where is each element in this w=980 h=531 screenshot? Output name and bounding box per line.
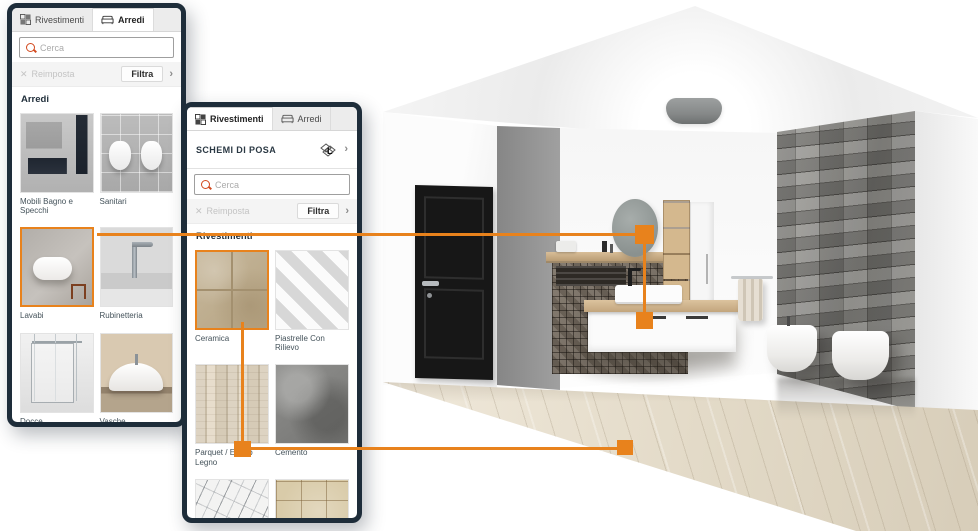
lavabi-thumbnail [20, 227, 94, 307]
tab-arredi[interactable]: Arredi [273, 107, 331, 130]
catalog-grid: Mobili Bagno e Specchi Sanitari Lavabi R… [12, 109, 181, 422]
catalog-item-piastrelle-rilievo[interactable]: Piastrelle Con Rilievo [275, 250, 349, 352]
reset-label: Reimposta [207, 206, 250, 216]
tab-label: Arredi [118, 15, 145, 25]
tile-layout-icon: L [318, 140, 338, 160]
shelf-towels [556, 241, 576, 252]
catalog-item-lavabi[interactable]: Lavabi [20, 227, 94, 320]
catalog-item-vasche[interactable]: Vasche [100, 333, 174, 422]
item-label: Piastrelle Con Rilievo [275, 334, 349, 352]
sofa-icon [101, 15, 114, 25]
clear-icon: ✕ [20, 69, 28, 80]
filter-row: ✕ Reimposta Filtra › [12, 62, 181, 86]
round-mirror[interactable] [612, 199, 658, 257]
door-handle-icon [422, 281, 439, 286]
section-label: Arredi [12, 86, 181, 109]
filter-button[interactable]: Filtra › [297, 203, 349, 219]
parquet-thumbnail [195, 364, 269, 444]
door-keyhole-icon [427, 293, 432, 298]
tab-bar: Rivestimenti Arredi [187, 107, 357, 131]
item-label: Mobili Bagno e Specchi [20, 197, 94, 215]
catalog-item-docce[interactable]: Docce [20, 333, 94, 422]
stone-base-shadow [777, 378, 915, 418]
docce-thumbnail [20, 333, 94, 413]
arredi-panel: Rivestimenti Arredi ✕ Reimposta Filtra › [7, 3, 186, 427]
reset-button[interactable]: ✕ Reimposta [195, 206, 250, 217]
sanitari-thumbnail [100, 113, 174, 193]
search-icon [201, 180, 210, 189]
chevron-right-icon: › [344, 144, 348, 155]
app-stage: Rivestimenti Arredi ✕ Reimposta Filtra › [0, 0, 980, 531]
marmo-thumbnail [195, 479, 269, 518]
tiles-icon [195, 114, 206, 125]
catalog-item-mobili-bagno[interactable]: Mobili Bagno e Specchi [20, 113, 94, 215]
ceramica-thumbnail [195, 250, 269, 330]
tall-cabinet-white[interactable] [690, 202, 714, 306]
item-label: Docce [20, 417, 94, 422]
shelf-bottles [602, 241, 607, 252]
reset-label: Reimposta [32, 69, 75, 79]
search-input[interactable] [40, 43, 167, 53]
sofa-icon [281, 114, 294, 124]
tab-arredi[interactable]: Arredi [93, 8, 154, 31]
catalog-item-pietra[interactable] [275, 479, 349, 518]
item-label: Sanitari [100, 197, 174, 206]
vasche-thumbnail [100, 333, 174, 413]
item-label: Parquet / Effetto Legno [195, 448, 269, 466]
filter-label: Filtra [121, 66, 163, 82]
filter-label: Filtra [297, 203, 339, 219]
catalog-grid: Ceramica Piastrelle Con Rilievo Parquet … [187, 246, 357, 518]
tab-label: Rivestimenti [35, 15, 84, 25]
schemi-di-posa-button[interactable]: SCHEMI DI POSA L › [187, 131, 357, 169]
filter-row: ✕ Reimposta Filtra › [187, 199, 357, 223]
item-label: Vasche [100, 417, 174, 422]
vanity-cabinet[interactable] [588, 312, 736, 352]
item-label: Rubinetteria [100, 311, 174, 320]
chevron-right-icon: › [345, 206, 349, 217]
wall-hung-toilet[interactable] [832, 331, 889, 380]
tab-bar: Rivestimenti Arredi [12, 8, 181, 32]
search-icon [26, 43, 35, 52]
mobili-bagno-thumbnail [20, 113, 94, 193]
shelf-niche [556, 266, 626, 286]
catalog-item-cemento[interactable]: Cemento [275, 364, 349, 466]
pietra-thumbnail [275, 479, 349, 518]
svg-text:L: L [327, 146, 333, 156]
search-box[interactable] [194, 174, 350, 195]
search-row [187, 169, 357, 199]
reset-button[interactable]: ✕ Reimposta [20, 69, 75, 80]
item-label: Ceramica [195, 334, 269, 343]
filter-button[interactable]: Filtra › [121, 66, 173, 82]
item-label: Lavabi [20, 311, 94, 320]
tab-rivestimenti[interactable]: Rivestimenti [12, 8, 93, 31]
search-input[interactable] [215, 180, 343, 190]
tab-rivestimenti[interactable]: Rivestimenti [187, 107, 273, 130]
tab-label: Arredi [298, 114, 322, 124]
washbasin[interactable] [615, 285, 682, 304]
chevron-right-icon: › [169, 69, 173, 80]
catalog-item-ceramica[interactable]: Ceramica [195, 250, 269, 352]
catalog-item-rubinetteria[interactable]: Rubinetteria [100, 227, 174, 320]
search-row [12, 32, 181, 62]
tiles-icon [20, 14, 31, 25]
schemi-di-posa-label: SCHEMI DI POSA [196, 145, 312, 155]
cemento-thumbnail [275, 364, 349, 444]
bidet[interactable] [767, 325, 817, 372]
basin-faucet[interactable] [628, 268, 632, 286]
piastrelle-rilievo-thumbnail [275, 250, 349, 330]
rubinetteria-thumbnail [100, 227, 174, 307]
tab-label: Rivestimenti [210, 114, 264, 124]
rivestimenti-panel: Rivestimenti Arredi SCHEMI DI POSA L › ✕ [182, 102, 362, 523]
clear-icon: ✕ [195, 206, 203, 217]
catalog-item-marmo[interactable] [195, 479, 269, 518]
search-box[interactable] [19, 37, 174, 58]
section-label: Rivestimenti [187, 223, 357, 246]
ceiling-lamp[interactable] [666, 98, 722, 124]
catalog-item-sanitari[interactable]: Sanitari [100, 113, 174, 215]
right-wall[interactable] [915, 111, 978, 423]
catalog-item-parquet[interactable]: Parquet / Effetto Legno [195, 364, 269, 466]
item-label: Cemento [275, 448, 349, 457]
hanging-towel[interactable] [738, 279, 763, 321]
